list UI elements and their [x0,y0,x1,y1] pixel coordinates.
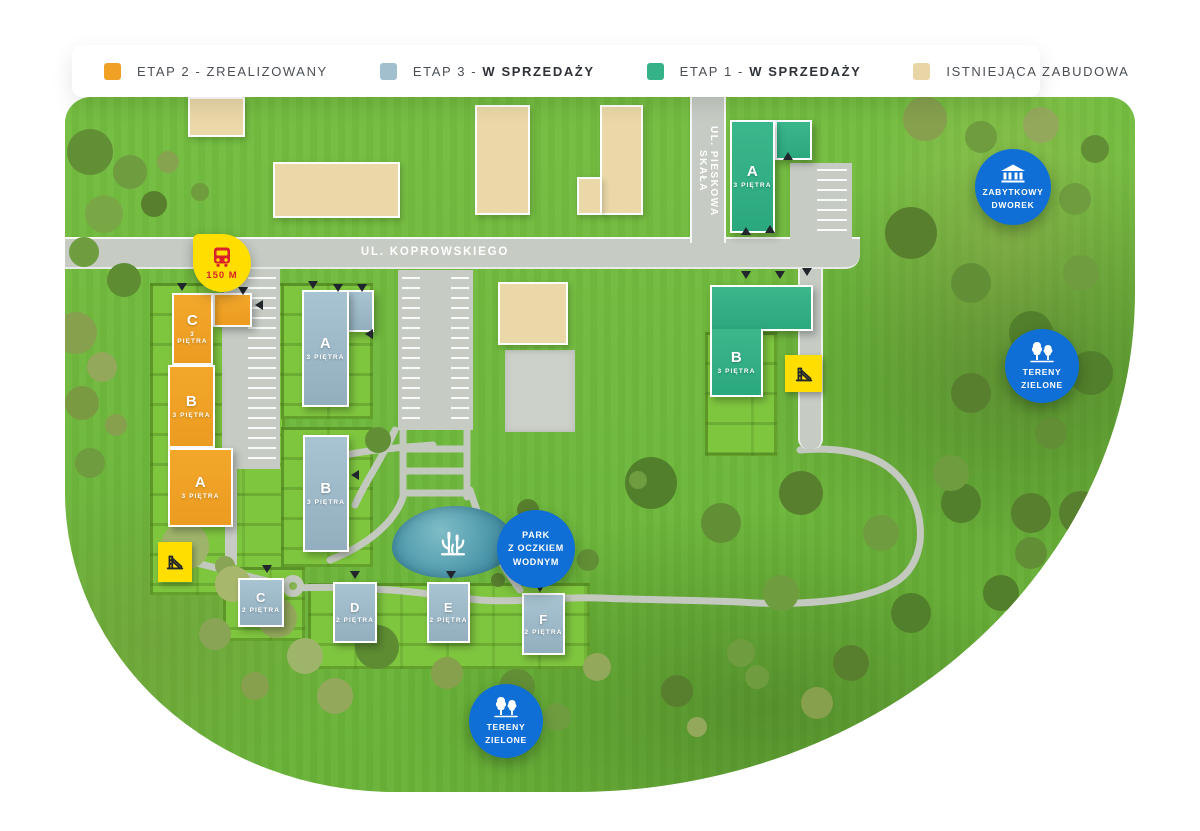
entrance-arrow-icon [333,284,343,292]
legend-item-existing: ISTNIEJĄCA ZABUDOWA [887,45,1155,97]
entrance-arrow-icon [802,268,812,276]
tree-cluster [365,427,391,453]
building-floors: 2 PIĘTRA [242,607,280,614]
building-floors: 3 PIĘTRA [181,493,219,500]
existing-building-5 [498,282,568,345]
badge-label: WODNYM [513,556,559,570]
tree-cluster [67,129,113,175]
badge-green-areas-south[interactable]: TERENY ZIELONE [469,684,543,758]
building-floors: 2 PIĘTRA [429,617,467,624]
legend-item-etap1: ETAP 1 - W SPRZEDAŻY [621,45,888,97]
badge-label: PARK [522,529,550,543]
entrance-arrow-icon [365,329,373,339]
entrance-arrow-icon [741,227,751,235]
legend-label-etap1: ETAP 1 - W SPRZEDAŻY [680,64,862,79]
etap1-color-swatch [647,63,664,80]
slide-icon [164,551,186,573]
entrance-arrow-icon [262,565,272,573]
tree-cluster [885,207,937,259]
entrance-arrow-icon [350,571,360,579]
building-letter: A [747,164,758,179]
concrete-yard [505,350,575,432]
badge-label: ZABYTKOWY [982,186,1043,199]
slide-icon [793,363,815,385]
building-etap2-c[interactable]: C 3 PIĘTRA [172,293,213,365]
road-label-pieskowa-skala: UL. PIESKOWA SKAŁA [695,105,721,237]
legend-label-existing: ISTNIEJĄCA ZABUDOWA [946,64,1129,79]
existing-building-3 [475,105,530,215]
building-floors: 3 PIĘTRA [174,331,211,345]
etap3-color-swatch [380,63,397,80]
building-etap2-b[interactable]: B 3 PIĘTRA [168,365,215,448]
tree-cluster [903,97,947,141]
building-floors: 2 PIĘTRA [524,629,562,636]
bus-stop-badge[interactable]: 150 M [193,234,251,292]
entrance-arrow-icon [775,271,785,279]
tree-cluster [625,457,677,509]
building-etap3-d[interactable]: D 2 PIĘTRA [333,582,377,643]
badge-label: ZIELONE [485,734,527,747]
legend-item-etap3: ETAP 3 - W SPRZEDAŻY [354,45,621,97]
building-letter: A [320,336,331,351]
existing-building-1 [188,97,245,137]
entrance-arrow-icon [357,284,367,292]
building-floors: 3 PIĘTRA [717,368,755,375]
playground-marker-west [158,542,192,582]
existing-building-4 [600,105,643,215]
building-floors: 2 PIĘTRA [336,617,374,624]
trees-icon [1029,341,1055,363]
building-letter: B [186,394,197,409]
building-etap3-b[interactable]: B 3 PIĘTRA [303,435,349,552]
manor-icon [999,163,1027,183]
badge-label: ZIELONE [1021,379,1063,392]
parking-stalls-central-left [402,277,420,423]
badge-label: TERENY [1023,366,1062,379]
building-etap3-c[interactable]: C 2 PIĘTRA [238,578,284,627]
building-etap1-b-bar[interactable] [710,285,813,331]
legend-label-etap2: ETAP 2 - ZREALIZOWANY [137,64,328,79]
road-label-koprowskiego: UL. KOPROWSKIEGO [315,246,555,258]
playground-marker-east [785,355,822,392]
building-letter: C [187,313,198,328]
trees-icon [493,696,519,718]
badge-label: TERENY [487,721,526,734]
legend-label-etap3: ETAP 3 - W SPRZEDAŻY [413,64,595,79]
building-floors: 3 PIĘTRA [306,354,344,361]
badge-label: Z OCZKIEM [508,542,564,556]
parking-stalls-east [817,169,847,233]
building-etap3-a-wing[interactable] [347,290,374,332]
existing-color-swatch [913,63,930,80]
entrance-arrow-icon [765,225,775,233]
entrance-arrow-icon [783,152,793,160]
entrance-arrow-icon [255,300,263,310]
reeds-icon [436,527,470,557]
building-letter: F [539,613,547,626]
site-map: UL. KOPROWSKIEGO UL. PIESKOWA SKAŁA [65,97,1135,792]
building-etap1-a-wing[interactable] [775,120,812,160]
building-etap1-b[interactable]: B 3 PIĘTRA [710,329,763,397]
legend-item-etap2: ETAP 2 - ZREALIZOWANY [78,45,354,97]
building-letter: B [731,350,742,365]
entrance-arrow-icon [308,281,318,289]
building-floors: 3 PIĘTRA [307,499,345,506]
building-letter: A [195,475,206,490]
building-floors: 3 PIĘTRA [733,182,771,189]
existing-building-2 [273,162,400,218]
building-letter: E [444,601,453,614]
legend-bar: ETAP 2 - ZREALIZOWANY ETAP 3 - W SPRZEDA… [72,45,1040,97]
building-letter: D [350,601,360,614]
etap2-color-swatch [104,63,121,80]
badge-manor[interactable]: ZABYTKOWY DWOREK [975,149,1051,225]
building-etap3-a[interactable]: A 3 PIĘTRA [302,290,349,407]
existing-building-4-wing [577,177,602,215]
entrance-arrow-icon [177,283,187,291]
building-etap3-e[interactable]: E 2 PIĘTRA [427,582,470,643]
building-letter: C [256,591,266,604]
badge-label: DWOREK [992,199,1035,212]
entrance-arrow-icon [351,470,359,480]
building-etap2-wing[interactable] [213,293,252,327]
building-floors: 3 PIĘTRA [172,412,210,419]
badge-green-areas-east[interactable]: TERENY ZIELONE [1005,329,1079,403]
building-etap2-a[interactable]: A 3 PIĘTRA [168,448,233,527]
entrance-arrow-icon [238,287,248,295]
building-etap3-f[interactable]: F 2 PIĘTRA [522,593,565,655]
bus-icon [210,245,234,269]
badge-park[interactable]: PARK Z OCZKIEM WODNYM [497,510,575,588]
entrance-arrow-icon [446,571,456,579]
bus-distance-label: 150 M [206,270,237,281]
building-letter: B [320,481,331,496]
parking-stalls-central-right [451,277,469,423]
building-etap1-a[interactable]: A 3 PIĘTRA [730,120,775,233]
entrance-arrow-icon [741,271,751,279]
